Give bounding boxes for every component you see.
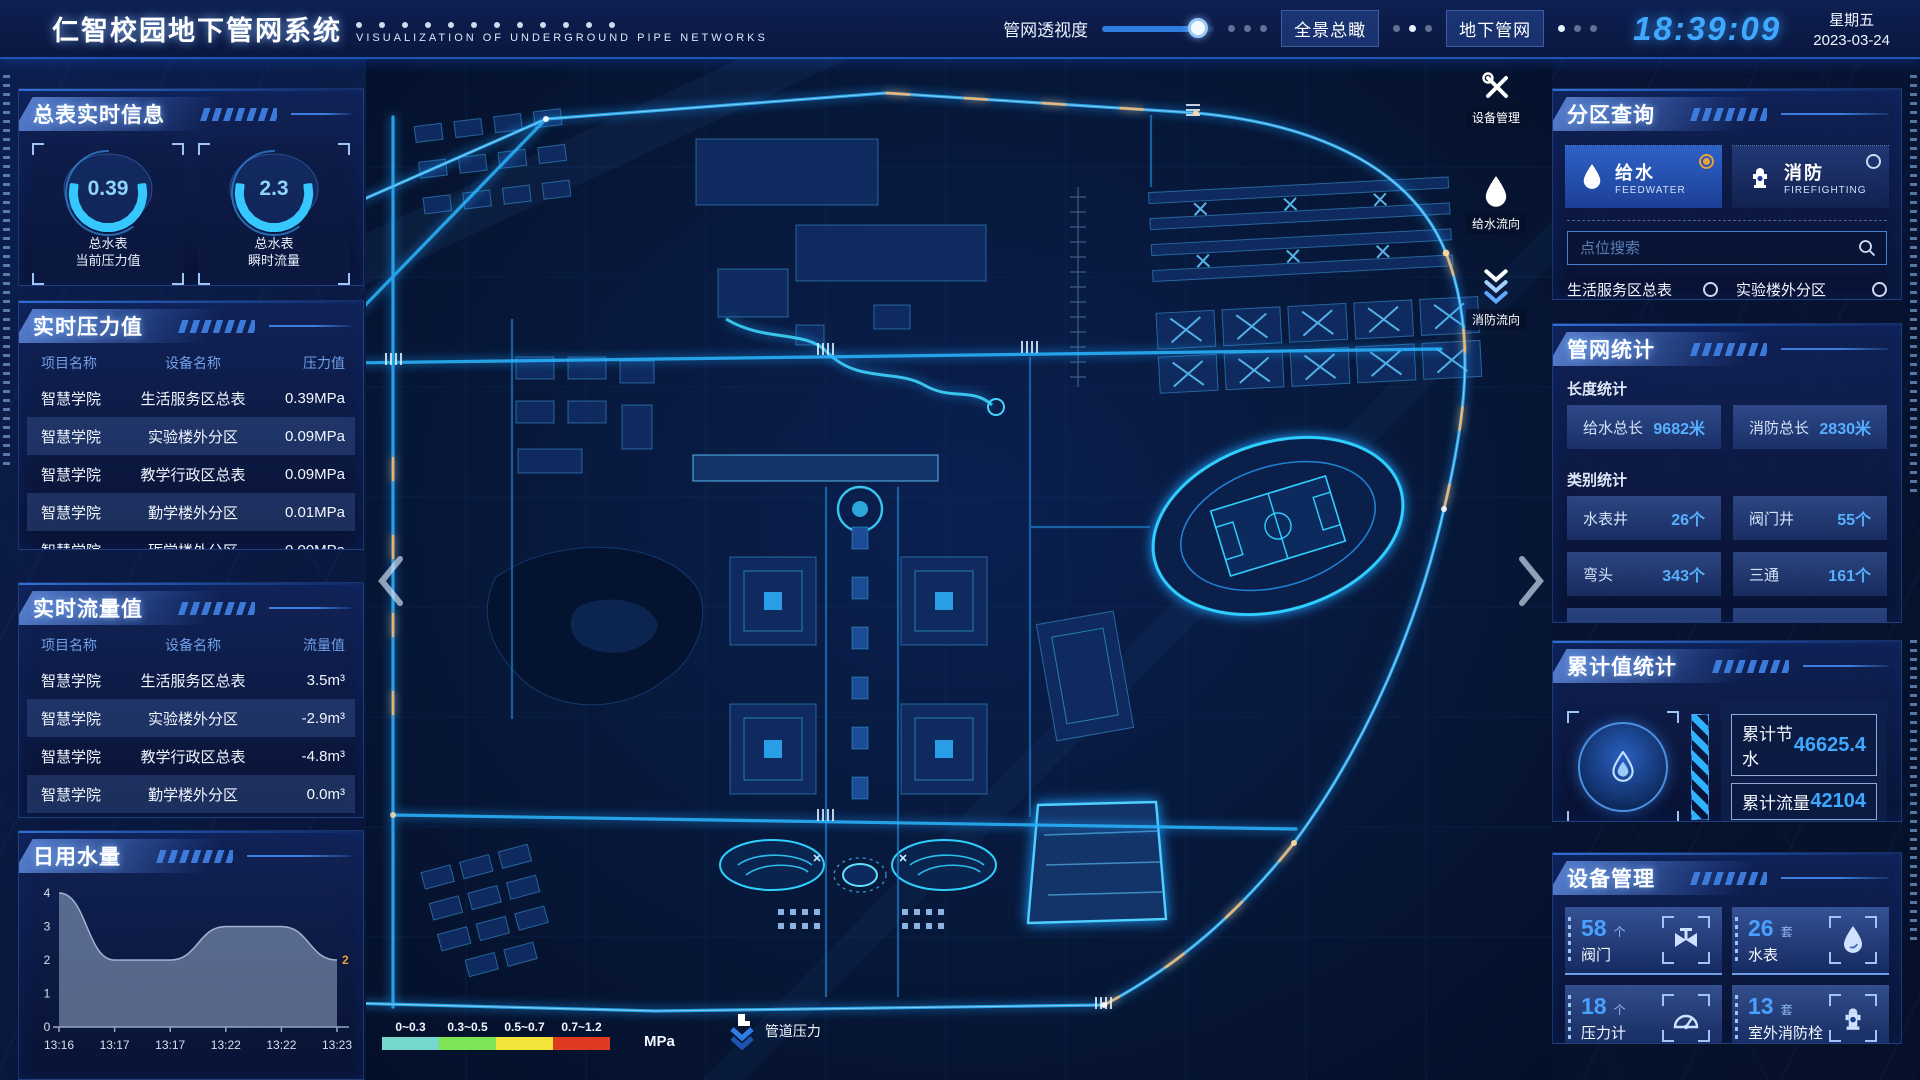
table-row[interactable]: 智慧学院砺学楼外分区-2.3m³ (27, 813, 355, 818)
svg-text:2: 2 (342, 953, 349, 967)
valve-icon (1671, 925, 1701, 955)
stat-card-cutoff (1567, 608, 1721, 623)
water-drop-icon (1610, 751, 1636, 783)
panel-title: 设备管理 (1553, 863, 1655, 893)
radio-icon (1866, 154, 1881, 169)
underground-button[interactable]: 地下管网 (1446, 10, 1544, 47)
slashes-decor (1711, 660, 1789, 673)
zone-item[interactable]: 实验楼外分区 (1736, 271, 1887, 300)
firefighting-button[interactable]: 消防FIREFIGHTING (1732, 145, 1889, 208)
pipe-pressure-icon (727, 1012, 757, 1050)
svg-text:0: 0 (44, 1020, 51, 1034)
pressure-gauge-icon (1671, 1003, 1701, 1033)
table-row[interactable]: 智慧学院生活服务区总表3.5m³ (27, 661, 355, 699)
legend-unit: MPa (644, 1033, 675, 1050)
line-decor (291, 113, 351, 115)
device-manage-tool[interactable]: 设备管理 (1458, 69, 1534, 128)
svg-text:4: 4 (44, 886, 51, 900)
line-decor (1781, 877, 1889, 879)
point-search[interactable] (1567, 231, 1887, 265)
line-decor (269, 607, 351, 609)
title-dots-decor (356, 22, 768, 28)
zone-list: 生活服务区总表 实验楼外分区 教学行政区总表 勤学楼外分区 砺学楼外分区 宿舍区… (1553, 265, 1901, 300)
gauge-dial: 0.39 (44, 147, 172, 239)
line-decor (247, 855, 351, 857)
panel-daily-water: 日用水量 01234 13:1613:1713:1713:2213:2213:2… (18, 830, 364, 1080)
chevrons-down-icon (1481, 269, 1511, 305)
panel-title: 分区查询 (1553, 99, 1655, 129)
svg-text:2: 2 (44, 953, 51, 967)
tool-label: 给水流向 (1466, 213, 1526, 234)
table-row[interactable]: 智慧学院勤学楼外分区0.0m³ (27, 775, 355, 813)
line-decor (1803, 665, 1889, 667)
cumulative-flow-row: 累计流量42104 (1731, 783, 1877, 820)
slashes-decor (199, 108, 277, 121)
slashes-decor (1689, 872, 1767, 885)
pressure-table: 项目名称设备名称压力值 智慧学院生活服务区总表0.39MPa 智慧学院实验楼外分… (19, 347, 363, 550)
gauge-label: 总水表 瞬时流量 (198, 235, 350, 269)
search-icon (1858, 239, 1876, 257)
feedwater-flow-tool[interactable]: 给水流向 (1458, 175, 1534, 234)
panel-pipe-stats: 管网统计 长度统计 给水总长9682米 消防总长2830米 类别统计 水表井26… (1552, 323, 1902, 623)
radio-selected-icon (1699, 154, 1714, 169)
gauge-value: 2.3 (259, 177, 288, 200)
svg-text:1: 1 (44, 987, 51, 1001)
table-row[interactable]: 智慧学院教学行政区总表-4.8m³ (27, 737, 355, 775)
panel-flow: 实时流量值 项目名称设备名称流量值 智慧学院生活服务区总表3.5m³ 智慧学院实… (18, 582, 364, 818)
pipe-pressure-marker: 管道压力 (727, 1012, 821, 1050)
svg-text:13:17: 13:17 (155, 1038, 185, 1052)
edge-decor-left (3, 75, 10, 465)
panel-zone-query: 分区查询 给水FEEDWATER 消防FIREFIGHTING (1552, 88, 1902, 300)
edge-decor-right-lower (1910, 640, 1917, 940)
stat-card-cutoff (1733, 608, 1887, 623)
device-card-hydrant[interactable]: 13套室外消防栓 (1732, 985, 1889, 1044)
wrench-icon (1479, 69, 1513, 103)
app-title: 仁智校园地下管网系统 (52, 9, 342, 48)
radio-icon (1872, 282, 1887, 297)
map-prev-arrow[interactable] (376, 555, 406, 607)
dots-decor (1393, 25, 1432, 32)
clock-time: 18:39:09 (1633, 10, 1781, 48)
stat-card: 阀门井55个 (1733, 496, 1887, 540)
panel-title: 管网统计 (1553, 334, 1655, 364)
search-input[interactable] (1578, 239, 1858, 258)
table-row[interactable]: 智慧学院教学行政区总表0.09MPa (27, 455, 355, 493)
gauge-label: 总水表 当前压力值 (32, 235, 184, 269)
panel-cumulative: 累计值统计 累计节水46625.4 累计流量42104 (1552, 640, 1902, 822)
line-decor (1781, 113, 1889, 115)
svg-text:13:23: 13:23 (322, 1038, 352, 1052)
feedwater-button[interactable]: 给水FEEDWATER (1565, 145, 1722, 208)
legend-color-2 (496, 1037, 553, 1050)
panel-meter-info: 总表实时信息 0.39 (18, 88, 364, 286)
panel-title: 实时压力值 (19, 311, 143, 341)
radio-icon (1703, 282, 1718, 297)
daily-water-chart: 01234 13:1613:1713:1713:2213:2213:23 2 (25, 881, 355, 1067)
slashes-decor (177, 602, 255, 615)
edge-decor-right (1910, 75, 1917, 495)
clock-weekday: 星期五 (1829, 9, 1874, 30)
slashes-decor (155, 850, 233, 863)
header-bar: 仁智校园地下管网系统 VISUALIZATION OF UNDERGROUND … (0, 0, 1920, 59)
slashes-decor (177, 320, 255, 333)
device-card-pressure-gauge[interactable]: 18个压力计 (1565, 985, 1722, 1044)
table-row[interactable]: 智慧学院生活服务区总表0.39MPa (27, 379, 355, 417)
transparency-slider-label: 管网透视度 (1003, 16, 1088, 41)
panel-title: 累计值统计 (1553, 651, 1677, 681)
dashboard: 仁智校园地下管网系统 VISUALIZATION OF UNDERGROUND … (0, 0, 1920, 1080)
panel-pressure: 实时压力值 项目名称设备名称压力值 智慧学院生活服务区总表0.39MPa 智慧学… (18, 300, 364, 550)
water-drop-icon (1840, 925, 1866, 955)
device-card-valve[interactable]: 58个阀门 (1565, 907, 1722, 975)
legend-color-1 (439, 1037, 496, 1050)
transparency-slider[interactable] (1102, 26, 1214, 32)
transparency-slider-knob[interactable] (1188, 18, 1208, 38)
dots-decor (1558, 25, 1597, 32)
gauge-flow: 2.3 总水表 瞬时流量 (198, 143, 350, 285)
dots-decor (1228, 25, 1267, 32)
stat-card: 消防总长2830米 (1733, 405, 1887, 449)
water-drop-icon (1482, 175, 1510, 209)
table-row[interactable]: 智慧学院勤学楼外分区0.01MPa (27, 493, 355, 531)
table-header: 项目名称设备名称流量值 (27, 629, 355, 661)
stat-card: 弯头343个 (1567, 552, 1721, 596)
fire-flow-tool[interactable]: 消防流向 (1458, 269, 1534, 330)
table-row[interactable]: 智慧学院实验楼外分区-2.9m³ (27, 699, 355, 737)
slashes-decor (1689, 108, 1767, 121)
hydrant-icon (1839, 1003, 1867, 1033)
stat-card: 水表井26个 (1567, 496, 1721, 540)
panel-device-manage: 设备管理 58个阀门 26套水表 18个压力计 (1552, 852, 1902, 1044)
category-stats-title: 类别统计 (1553, 461, 1901, 496)
hydrant-icon (1748, 163, 1772, 191)
zone-item[interactable]: 生活服务区总表 (1567, 271, 1718, 300)
panel-title: 日用水量 (19, 841, 121, 871)
svg-text:13:22: 13:22 (266, 1038, 296, 1052)
transparency-slider-fill (1102, 26, 1198, 32)
dashed-divider (1567, 220, 1887, 221)
map-canvas (366, 57, 1552, 1080)
clock-date: 2023-03-24 (1813, 32, 1890, 49)
device-card-watermeter[interactable]: 26套水表 (1732, 907, 1889, 975)
svg-text:13:16: 13:16 (44, 1038, 74, 1052)
stat-card: 给水总长9682米 (1567, 405, 1721, 449)
line-decor (269, 325, 351, 327)
legend-color-0 (382, 1037, 439, 1050)
flow-table: 项目名称设备名称流量值 智慧学院生活服务区总表3.5m³ 智慧学院实验楼外分区-… (19, 629, 363, 818)
cumulative-saving-row: 累计节水46625.4 (1731, 714, 1877, 776)
panel-title: 总表实时信息 (19, 99, 165, 129)
tool-label: 设备管理 (1466, 107, 1526, 128)
slashes-decor (1689, 343, 1767, 356)
map-next-arrow[interactable] (1516, 555, 1546, 607)
legend-color-3 (553, 1037, 610, 1050)
table-header: 项目名称设备名称压力值 (27, 347, 355, 379)
tool-label: 消防流向 (1466, 309, 1526, 330)
water-drop-icon (1581, 163, 1603, 191)
overview-button[interactable]: 全景总瞰 (1281, 10, 1379, 47)
svg-text:13:22: 13:22 (211, 1038, 241, 1052)
length-stats-title: 长度统计 (1553, 370, 1901, 405)
campus-map[interactable]: 设备管理 给水流向 消防流向 0~0.3 0.3~0.5 0 (366, 57, 1552, 1080)
gauge-dial: 2.3 (210, 147, 338, 239)
panel-title: 实时流量值 (19, 593, 143, 623)
table-row[interactable]: 智慧学院砺学楼外分区0.00MPa (27, 531, 355, 550)
app-subtitle: VISUALIZATION OF UNDERGROUND PIPE NETWOR… (356, 32, 768, 44)
hazard-stripe-decor (1691, 714, 1709, 820)
svg-text:3: 3 (44, 920, 51, 934)
water-badge (1567, 711, 1679, 822)
svg-text:13:17: 13:17 (100, 1038, 130, 1052)
line-decor (1781, 348, 1889, 350)
stat-card: 三通161个 (1733, 552, 1887, 596)
gauge-pressure: 0.39 总水表 当前压力值 (32, 143, 184, 285)
gauge-value: 0.39 (88, 177, 129, 200)
table-row[interactable]: 智慧学院实验楼外分区0.09MPa (27, 417, 355, 455)
pressure-legend: 0~0.3 0.3~0.5 0.5~0.7 0.7~1.2 MPa 管道压力 (382, 1012, 821, 1050)
